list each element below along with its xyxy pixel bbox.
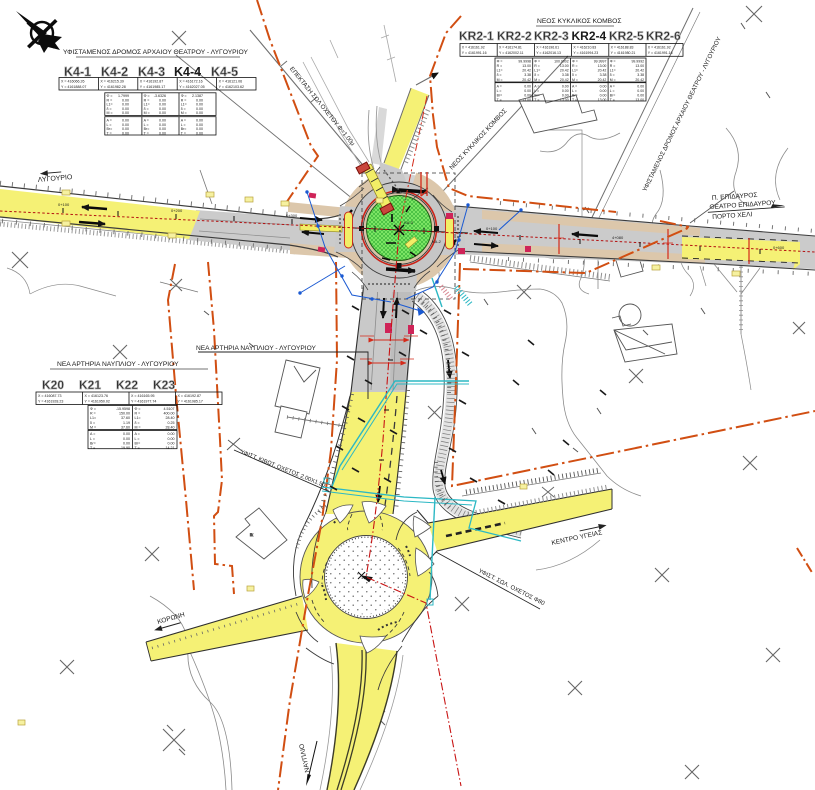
svg-text:M =: M = [90, 425, 96, 429]
svg-text:150.00: 150.00 [119, 412, 130, 416]
svg-text:0.00: 0.00 [168, 437, 175, 441]
svg-text:δ =: δ = [534, 73, 539, 77]
svg-text:37.60: 37.60 [121, 425, 130, 429]
svg-text:Φ =: Φ = [610, 59, 616, 63]
svg-text:400.00: 400.00 [164, 412, 175, 416]
svg-text:X = 416121.06: X = 416121.06 [219, 80, 242, 84]
svg-text:0.00: 0.00 [168, 441, 175, 445]
svg-text:Y = 4161888.07: Y = 4161888.07 [61, 85, 86, 89]
svg-text:0.00: 0.00 [123, 432, 130, 436]
svg-text:X = 416196.61: X = 416196.61 [536, 46, 559, 50]
svg-text:L1=: L1= [572, 69, 578, 73]
svg-text:Φ =: Φ = [572, 59, 578, 63]
svg-text:13.00: 13.00 [635, 64, 644, 68]
svg-text:0.00: 0.00 [123, 437, 130, 441]
svg-text:K4-3: K4-3 [138, 65, 165, 79]
svg-text:A =: A = [90, 432, 95, 436]
svg-text:0.00: 0.00 [524, 94, 531, 98]
svg-text:0.00: 0.00 [637, 94, 644, 98]
svg-text:0.00: 0.00 [600, 89, 607, 93]
svg-text:4+080: 4+080 [612, 235, 624, 240]
svg-text:100.0002: 100.0002 [554, 59, 569, 63]
svg-text:R =: R = [610, 64, 616, 68]
svg-text:A =: A = [135, 432, 140, 436]
svg-text:M =: M = [135, 425, 141, 429]
svg-text:0.00: 0.00 [637, 85, 644, 89]
svg-text:K4-1: K4-1 [64, 65, 91, 79]
svg-text:X = 416161.92: X = 416161.92 [462, 46, 485, 50]
svg-text:0.00: 0.00 [600, 85, 607, 89]
svg-text:δ =: δ = [90, 421, 95, 425]
svg-text:0.00: 0.00 [196, 111, 203, 115]
svg-text:3.38: 3.38 [562, 73, 569, 77]
svg-text:M =: M = [610, 78, 616, 82]
svg-text:Y = 4161980.21: Y = 4161980.21 [611, 51, 636, 55]
svg-text:Y = 4161977.74: Y = 4161977.74 [131, 400, 156, 404]
svg-text:14.21: 14.21 [166, 446, 175, 450]
svg-text:Φ =: Φ = [90, 407, 96, 411]
svg-text:R =: R = [534, 64, 540, 68]
svg-text:A =: A = [610, 85, 615, 89]
svg-text:K21: K21 [79, 378, 101, 392]
svg-text:20.42: 20.42 [522, 69, 531, 73]
svg-text:M =: M = [572, 78, 578, 82]
svg-text:L1=: L1= [90, 416, 96, 420]
svg-text:20.42: 20.42 [522, 78, 531, 82]
svg-text:δ =: δ = [135, 421, 140, 425]
svg-text:0.00: 0.00 [122, 111, 129, 115]
svg-text:KR2-5: KR2-5 [609, 29, 644, 43]
svg-text:T =: T = [497, 98, 502, 102]
svg-text:99.9997: 99.9997 [594, 59, 607, 63]
svg-text:A =: A = [534, 85, 539, 89]
svg-text:Y = 4161950.02: Y = 4161950.02 [85, 400, 110, 404]
svg-text:T =: T = [572, 98, 577, 102]
svg-text:T =: T = [90, 446, 95, 450]
svg-text:A =: A = [497, 85, 502, 89]
svg-text:3.38: 3.38 [524, 73, 531, 77]
svg-text:L1=: L1= [610, 69, 616, 73]
svg-text:Br=: Br= [90, 441, 96, 445]
svg-text:0+600: 0+600 [773, 245, 785, 250]
svg-text:M =: M = [181, 111, 187, 115]
svg-text:Y = 4161928.23: Y = 4161928.23 [38, 400, 63, 404]
svg-text:0.00: 0.00 [637, 89, 644, 93]
svg-text:M =: M = [144, 111, 150, 115]
svg-text:Y = 4161985.17: Y = 4161985.17 [140, 85, 165, 89]
svg-text:13.00: 13.00 [522, 64, 531, 68]
svg-text:KA-2: KA-2 [432, 239, 442, 244]
svg-text:Y = 4161991.16: Y = 4161991.16 [462, 51, 487, 55]
svg-text:3.38: 3.38 [600, 73, 607, 77]
svg-text:X = 416161.92: X = 416161.92 [648, 46, 671, 50]
svg-text:Br=: Br= [497, 94, 503, 98]
svg-text:K4-4: K4-4 [174, 65, 201, 79]
svg-text:L1=: L1= [497, 69, 503, 73]
svg-text:20.42: 20.42 [635, 69, 644, 73]
svg-text:1.19: 1.19 [123, 421, 130, 425]
svg-text:20.42: 20.42 [560, 78, 569, 82]
svg-text:T =: T = [107, 131, 112, 135]
svg-text:X = 416172.16: X = 416172.16 [179, 80, 202, 84]
svg-text:0.00: 0.00 [562, 89, 569, 93]
svg-text:X = 416123.76: X = 416123.76 [85, 394, 108, 398]
svg-text:0.00: 0.00 [562, 94, 569, 98]
svg-text:T =: T = [610, 98, 615, 102]
svg-text:δ =: δ = [610, 73, 615, 77]
svg-text:13.00: 13.00 [560, 64, 569, 68]
svg-text:M =: M = [497, 78, 503, 82]
svg-text:20.42: 20.42 [560, 69, 569, 73]
svg-text:K23: K23 [153, 378, 175, 392]
svg-text:K20: K20 [42, 378, 64, 392]
svg-text:L =: L = [135, 437, 140, 441]
svg-text:R =: R = [572, 64, 578, 68]
svg-text:0.00: 0.00 [168, 432, 175, 436]
svg-text:0.00: 0.00 [524, 85, 531, 89]
svg-text:0+200: 0+200 [171, 208, 183, 213]
svg-text:0.00: 0.00 [562, 85, 569, 89]
svg-text:13.00: 13.00 [560, 98, 569, 102]
svg-text:R =: R = [135, 412, 141, 416]
svg-text:0+100: 0+100 [58, 202, 70, 207]
svg-text:A =: A = [572, 85, 577, 89]
svg-text:13.00: 13.00 [598, 98, 607, 102]
svg-text:Br=: Br= [610, 94, 616, 98]
svg-text:R =: R = [497, 64, 503, 68]
svg-text:Φ =: Φ = [534, 59, 540, 63]
svg-text:KR2-4: KR2-4 [572, 29, 607, 43]
svg-text:T =: T = [144, 131, 149, 135]
svg-text:19.90: 19.90 [121, 446, 130, 450]
svg-text:Y = 4162027.05: Y = 4162027.05 [179, 85, 204, 89]
svg-text:X = 416087.73: X = 416087.73 [38, 394, 61, 398]
svg-text:99.9998: 99.9998 [518, 59, 531, 63]
svg-text:13.00: 13.00 [635, 98, 644, 102]
svg-text:Y = 4162002.11: Y = 4162002.11 [499, 51, 524, 55]
svg-text:L =: L = [572, 89, 577, 93]
svg-text:Br=: Br= [135, 441, 141, 445]
svg-text:0.25: 0.25 [168, 421, 175, 425]
svg-text:ΝΕΑ ΑΡΤΗΡΙΑ ΝΑΥΠΛΙΟΥ - ΛΥΓΟΥΡΙ: ΝΕΑ ΑΡΤΗΡΙΑ ΝΑΥΠΛΙΟΥ - ΛΥΓΟΥΡΙΟΥ [196, 345, 317, 352]
svg-text:0.00: 0.00 [600, 94, 607, 98]
svg-text:Br=: Br= [534, 94, 540, 98]
svg-text:KR2-3: KR2-3 [534, 29, 569, 43]
svg-text:99.9992: 99.9992 [631, 59, 644, 63]
svg-text:Y = 4162103.62: Y = 4162103.62 [219, 85, 244, 89]
svg-text:Y = 4161991.16: Y = 4161991.16 [648, 51, 673, 55]
svg-text:KR2-2: KR2-2 [497, 29, 532, 43]
svg-text:Y = 4162016.13: Y = 4162016.13 [536, 51, 561, 55]
svg-text:L1=: L1= [135, 416, 141, 420]
svg-text:0.00: 0.00 [159, 111, 166, 115]
svg-text:37.60: 37.60 [121, 416, 130, 420]
svg-text:L =: L = [534, 89, 539, 93]
svg-text:K4-5: K4-5 [211, 65, 238, 79]
svg-text:ΝΕΑ ΑΡΤΗΡΙΑ ΝΑΥΠΛΙΟΥ - ΛΥΓΟΥΡΙ: ΝΕΑ ΑΡΤΗΡΙΑ ΝΑΥΠΛΙΟΥ - ΛΥΓΟΥΡΙΟΥ [57, 361, 179, 368]
svg-text:M =: M = [534, 78, 540, 82]
svg-text:K4-2: K4-2 [101, 65, 128, 79]
svg-text:28.40: 28.40 [166, 416, 175, 420]
svg-text:13.00: 13.00 [522, 98, 531, 102]
svg-text:KR2-1: KR2-1 [459, 29, 494, 43]
svg-text:L =: L = [497, 89, 502, 93]
svg-text:L =: L = [610, 89, 615, 93]
svg-text:T =: T = [135, 446, 140, 450]
svg-text:20.42: 20.42 [635, 78, 644, 82]
svg-text:3.38: 3.38 [637, 73, 644, 77]
svg-text:R =: R = [90, 412, 96, 416]
svg-text:28.40: 28.40 [166, 425, 175, 429]
svg-text:X = 416210.83: X = 416210.83 [573, 46, 596, 50]
svg-text:X = 416165.95: X = 416165.95 [131, 394, 154, 398]
svg-text:0+300: 0+300 [286, 213, 298, 218]
svg-text:0.00: 0.00 [196, 131, 203, 135]
svg-text:X = 416215.39: X = 416215.39 [100, 80, 123, 84]
svg-text:0+100: 0+100 [486, 226, 498, 231]
svg-text:KA-3: KA-3 [404, 220, 414, 225]
svg-text:T =: T = [534, 98, 539, 102]
svg-text:X = 416188.83: X = 416188.83 [611, 46, 634, 50]
svg-text:T =: T = [181, 131, 186, 135]
svg-text:Y = 4161985.17: Y = 4161985.17 [178, 400, 203, 404]
svg-text:Br=: Br= [572, 94, 578, 98]
svg-text:13.00: 13.00 [598, 64, 607, 68]
svg-text:0.00: 0.00 [123, 441, 130, 445]
svg-text:δ =: δ = [497, 73, 502, 77]
svg-text:L1=: L1= [534, 69, 540, 73]
svg-text:KR2-6: KR2-6 [646, 29, 681, 43]
svg-text:X = 416192.87: X = 416192.87 [178, 394, 201, 398]
svg-text:20.42: 20.42 [598, 78, 607, 82]
svg-text:K22: K22 [116, 378, 138, 392]
svg-text:L =: L = [90, 437, 95, 441]
svg-text:Y = 4161982.28: Y = 4161982.28 [100, 85, 125, 89]
svg-text:0.00: 0.00 [159, 131, 166, 135]
svg-text:0.00: 0.00 [524, 89, 531, 93]
svg-text:X = 416066.26: X = 416066.26 [61, 80, 84, 84]
svg-text:ΝΕΟΣ ΚΥΚΛΙΚΟΣ ΚΟΜΒΟΣ: ΝΕΟΣ ΚΥΚΛΙΚΟΣ ΚΟΜΒΟΣ [537, 18, 621, 25]
svg-text:20.42: 20.42 [598, 69, 607, 73]
svg-text:δ =: δ = [572, 73, 577, 77]
svg-text:Φ =: Φ = [135, 407, 141, 411]
svg-text:4.5107: 4.5107 [164, 407, 175, 411]
svg-text:ΥΦΙΣΤΑΜΕΝΟΣ ΔΡΟΜΟΣ ΑΡΧΑΙΟΥ ΘΕΑ: ΥΦΙΣΤΑΜΕΝΟΣ ΔΡΟΜΟΣ ΑΡΧΑΙΟΥ ΘΕΑΤΡΟΥ - ΛΥΓ… [63, 49, 248, 56]
svg-text:ik: ik [250, 532, 253, 537]
svg-text:X = 416174.81: X = 416174.81 [499, 46, 522, 50]
svg-text:Φ =: Φ = [497, 59, 503, 63]
svg-text:0.00: 0.00 [122, 131, 129, 135]
svg-text:M =: M = [107, 111, 113, 115]
svg-text:-15.9598: -15.9598 [116, 407, 130, 411]
svg-text:Y = 4161994.23: Y = 4161994.23 [573, 51, 598, 55]
svg-text:X = 416192.87: X = 416192.87 [140, 80, 163, 84]
